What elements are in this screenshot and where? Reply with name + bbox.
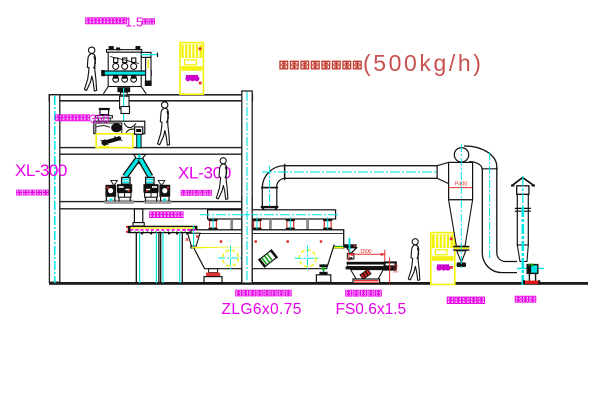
- svg-text:1.5: 1.5: [125, 15, 143, 30]
- svg-text:350: 350: [90, 114, 109, 126]
- svg-text:1500: 1500: [360, 249, 371, 255]
- svg-text:345: 345: [394, 264, 400, 273]
- svg-text:(500kg/h): (500kg/h): [363, 50, 484, 76]
- svg-text:ZLG6x0.75: ZLG6x0.75: [222, 301, 302, 318]
- svg-text:XL-300: XL-300: [15, 161, 67, 180]
- svg-text:FS0.6x1.5: FS0.6x1.5: [336, 301, 407, 318]
